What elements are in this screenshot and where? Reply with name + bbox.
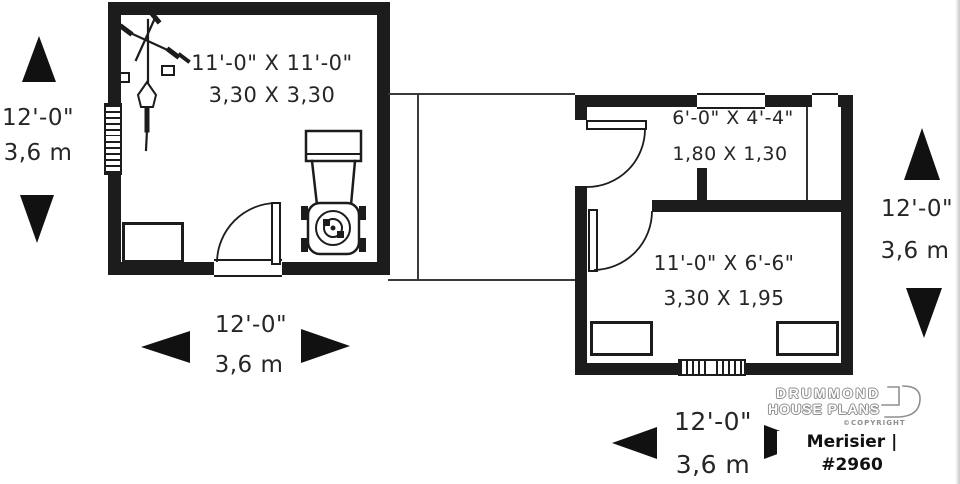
storage-wall-stub bbox=[697, 168, 707, 202]
garage-size-metric: 3,30 X 3,30 bbox=[152, 85, 392, 106]
copyright-label: ©COPYRIGHT bbox=[843, 419, 906, 427]
drummond-logo-line1: DRUMMOND bbox=[776, 386, 876, 400]
dim-bottom-left-arrow-left bbox=[141, 331, 190, 363]
storage-top-vent bbox=[812, 93, 838, 108]
garage-door-leaf bbox=[271, 202, 281, 265]
large-storage-size-metric: 3,30 X 1,95 bbox=[614, 288, 834, 308]
garage-window-mullion bbox=[106, 136, 120, 140]
dim-left-metric: 3,6 m bbox=[0, 142, 78, 165]
dim-bottom-left-arrow-right bbox=[301, 329, 350, 363]
storage-bottom-window-mullion bbox=[709, 361, 715, 374]
dim-left-imperial: 12'-0" bbox=[0, 107, 78, 130]
dim-right-arrow-up bbox=[904, 128, 940, 180]
dim-bottom-left-metric: 3,6 m bbox=[189, 354, 309, 377]
large-storage-size-imperial: 11'-0" X 6'-6" bbox=[614, 253, 834, 273]
dim-right-imperial: 12'-0" bbox=[871, 198, 960, 221]
floor-plan-canvas: 11'-0" X 11'-0" 3,30 X 3,30 6'-0" X 4'-4… bbox=[0, 0, 960, 484]
dim-right-arrow-down bbox=[906, 288, 942, 338]
dim-bottom-right-imperial: 12'-0" bbox=[653, 409, 773, 434]
garage-size-imperial: 11'-0" X 11'-0" bbox=[152, 53, 392, 74]
dim-right-metric: 3,6 m bbox=[869, 240, 960, 263]
storage-bench-left bbox=[590, 321, 653, 356]
small-storage-size-imperial: 6'-0" X 4'-4" bbox=[643, 109, 823, 128]
image-edge-artifact bbox=[955, 0, 960, 484]
small-storage-size-metric: 1,80 X 1,30 bbox=[640, 145, 820, 164]
dim-bottom-right-metric: 3,6 m bbox=[653, 452, 773, 477]
storage-room-door-leaf bbox=[588, 209, 598, 272]
dim-bottom-left-imperial: 12'-0" bbox=[191, 314, 311, 337]
dim-bottom-right-arrow-left bbox=[612, 427, 657, 459]
storage-bench-right bbox=[776, 321, 839, 356]
dim-left-arrow-down bbox=[20, 195, 54, 243]
drummond-d-logo-icon bbox=[878, 383, 924, 421]
breezeway-outline bbox=[388, 94, 575, 280]
garage-workbench bbox=[122, 222, 184, 263]
dim-left-arrow-up bbox=[22, 36, 56, 82]
drummond-logo-line2: HOUSE PLANS bbox=[768, 402, 876, 416]
storage-entry-door-leaf bbox=[586, 120, 647, 130]
plan-name-label: Merisier | #2960 bbox=[777, 431, 927, 455]
storage-interior-wall bbox=[652, 200, 841, 212]
